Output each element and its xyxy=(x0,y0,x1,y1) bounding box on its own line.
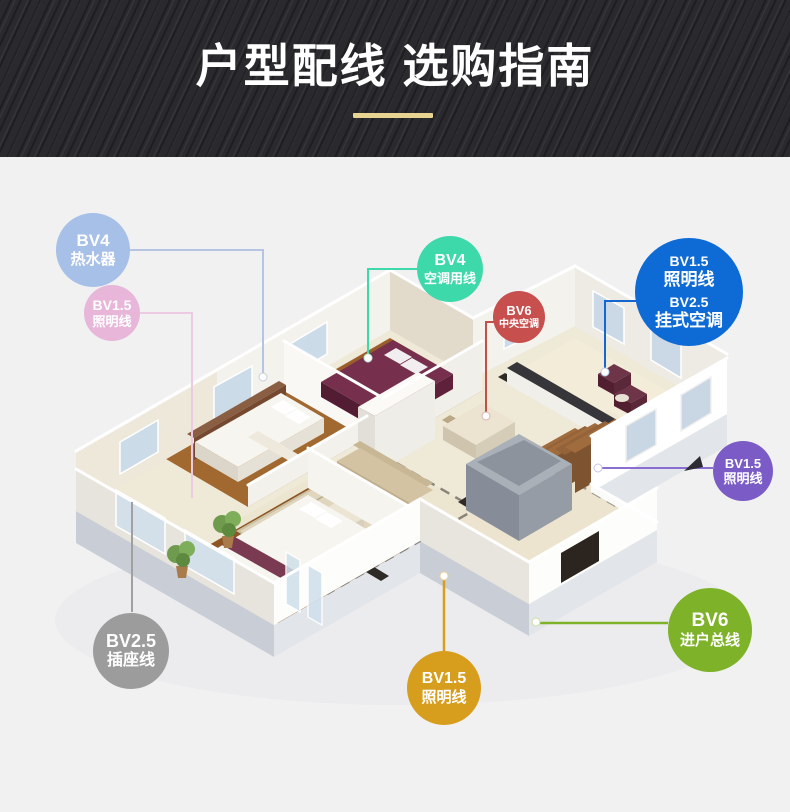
connector-endpoints xyxy=(259,354,609,626)
badge-wire-spec: BV1.5 xyxy=(725,456,761,471)
connector-ac-supply xyxy=(368,269,418,356)
badge-use-label: 照明线 xyxy=(723,471,762,486)
badge-use-label: 挂式空调 xyxy=(655,311,723,331)
badge-main-inlet: BV6 进户总线 xyxy=(668,588,752,672)
badge-use-label: 照明线 xyxy=(92,314,131,329)
badge-central-ac: BV6 中央空调 xyxy=(493,291,545,343)
badge-use-label: 空调用线 xyxy=(424,271,476,286)
badge-lighting-right: BV1.5 照明线 xyxy=(713,441,773,501)
badge-use-label: 插座线 xyxy=(107,652,155,671)
badge-use-label: 照明线 xyxy=(421,689,466,707)
badge-wire-spec: BV1.5 xyxy=(93,297,132,314)
page: 户型配线 选购指南 xyxy=(0,0,790,812)
badge-lighting-bottom: BV1.5 照明线 xyxy=(407,651,481,725)
badge-use-label: 中央空调 xyxy=(499,319,539,331)
badge-wire-spec: BV2.5 xyxy=(106,631,156,652)
badge-use-label: 进户总线 xyxy=(680,632,740,650)
badge-wall-ac: BV1.5 照明线 BV2.5 挂式空调 xyxy=(635,238,743,346)
badge-water-heater: BV4 热水器 xyxy=(56,213,130,287)
badge-wire-spec: BV4 xyxy=(434,252,465,271)
badge-lighting-left: BV1.5 照明线 xyxy=(84,285,140,341)
badge-wire-spec: BV6 xyxy=(506,303,531,318)
connector-wall-ac xyxy=(605,301,636,370)
badge-wire-spec: BV2.5 xyxy=(670,294,709,311)
badge-socket-line: BV2.5 插座线 xyxy=(93,613,169,689)
badge-use-label: 照明线 xyxy=(664,270,715,290)
badge-use-label: 热水器 xyxy=(70,251,115,269)
badge-wire-spec: BV1.5 xyxy=(670,253,709,270)
connector-central-ac xyxy=(486,322,498,414)
connector-lighting-left xyxy=(138,313,192,498)
badge-wire-spec: BV4 xyxy=(76,231,109,251)
badge-wire-spec: BV6 xyxy=(692,610,729,632)
badge-ac-supply: BV4 空调用线 xyxy=(417,236,483,302)
callout-connectors xyxy=(0,0,790,812)
badge-wire-spec: BV1.5 xyxy=(422,670,466,689)
